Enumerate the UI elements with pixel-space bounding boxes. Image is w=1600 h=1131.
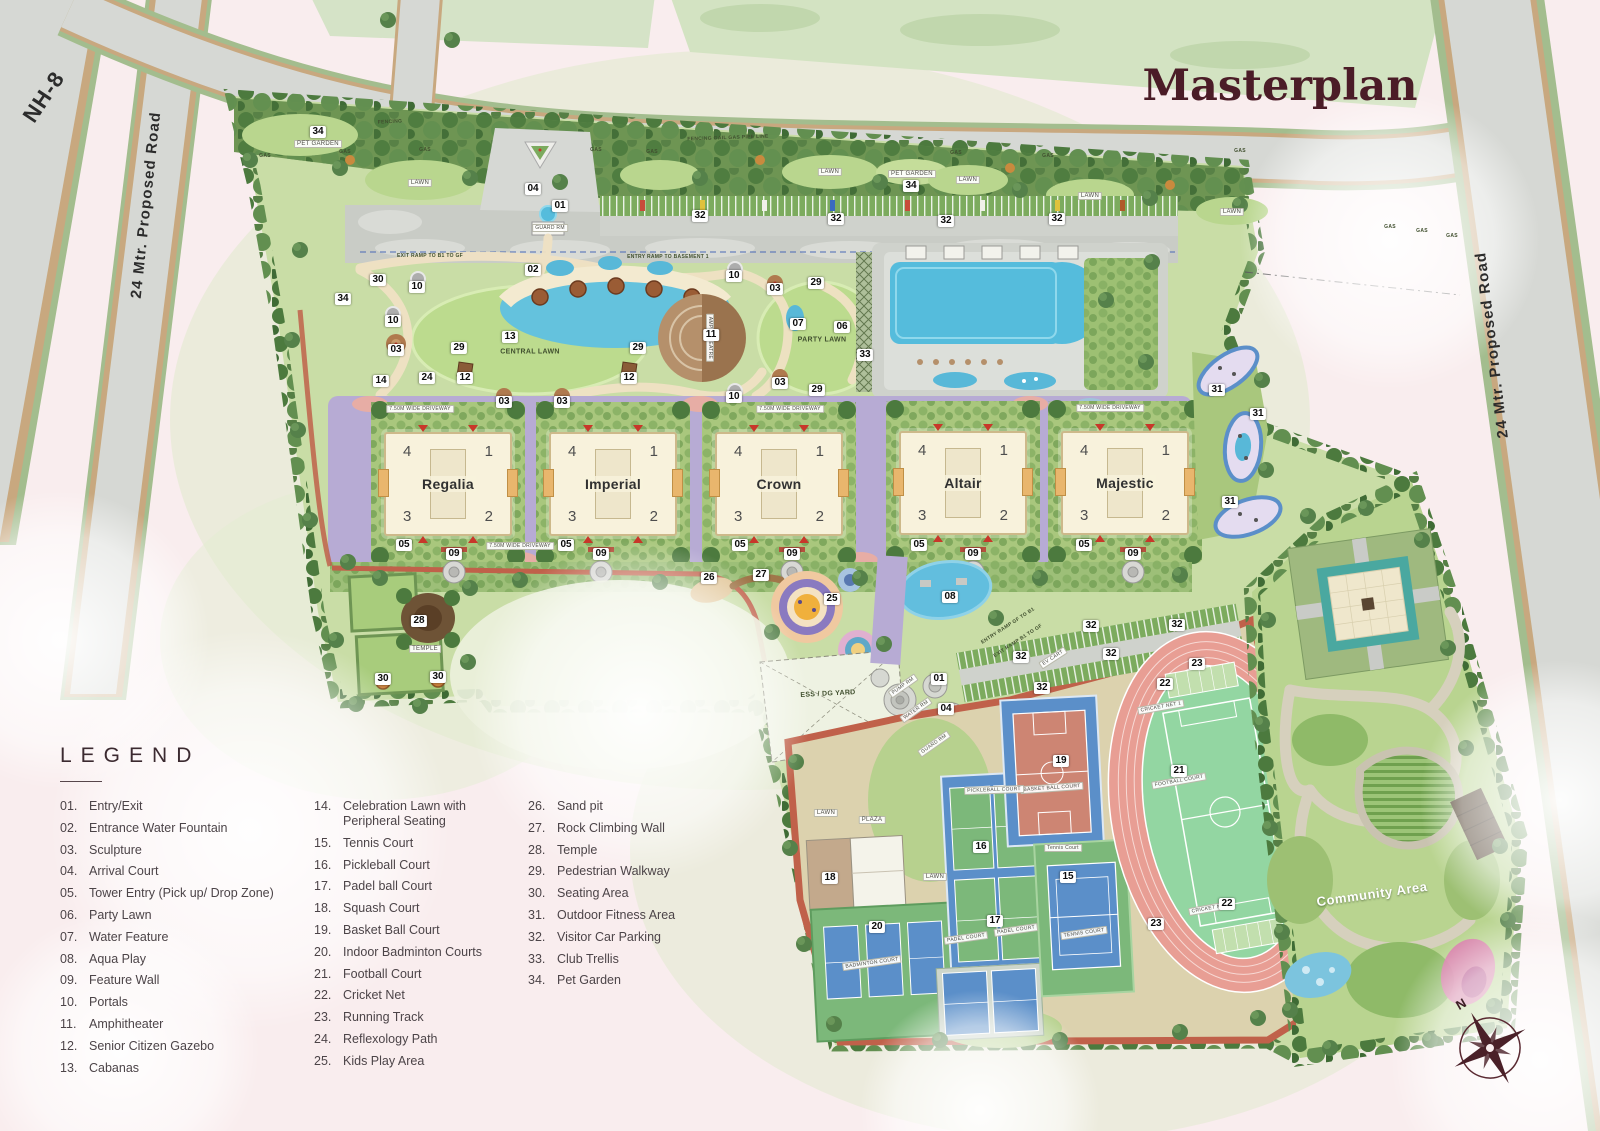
legend-heading: LEGEND bbox=[60, 744, 698, 768]
map-label: LAWN bbox=[408, 179, 432, 187]
tower-entry-tab bbox=[1184, 468, 1195, 496]
legend-column-3: 26.Sand pit27.Rock Climbing Wall28.Templ… bbox=[528, 799, 698, 1082]
map-label: LAWN bbox=[923, 873, 947, 881]
map-marker: 01 bbox=[552, 200, 568, 212]
legend-item: 31.Outdoor Fitness Area bbox=[528, 908, 698, 923]
map-label: LAWN bbox=[956, 176, 980, 184]
map-label: GAS bbox=[259, 153, 271, 159]
map-label: ENTRY RAMP TO BASEMENT 1 bbox=[627, 254, 709, 260]
legend-column-1: 01.Entry/Exit02.Entrance Water Fountain0… bbox=[60, 799, 314, 1082]
entry-arrow-icon bbox=[1095, 424, 1105, 431]
entry-arrow-icon bbox=[799, 425, 809, 432]
tower-unit-number: 4 bbox=[734, 443, 742, 460]
legend-item: 30.Seating Area bbox=[528, 886, 698, 901]
map-label: PET GARDEN bbox=[888, 170, 936, 178]
map-marker: 32 bbox=[1013, 651, 1029, 663]
map-label: GAS bbox=[590, 147, 602, 153]
map-marker: 30 bbox=[370, 274, 386, 286]
tower-name: Altair bbox=[942, 475, 984, 491]
map-marker: 32 bbox=[1049, 213, 1065, 225]
legend-item: 12.Senior Citizen Gazebo bbox=[60, 1039, 314, 1054]
legend-item: 05.Tower Entry (Pick up/ Drop Zone) bbox=[60, 886, 314, 901]
entry-arrow-icon bbox=[583, 425, 593, 432]
map-marker: 32 bbox=[938, 215, 954, 227]
map-label: 7.50M WIDE DRIVEWAY bbox=[486, 542, 554, 550]
entry-arrow-icon bbox=[983, 424, 993, 431]
tower-name: Imperial bbox=[583, 476, 643, 492]
map-label: GAS bbox=[1234, 148, 1246, 154]
legend-item: 13.Cabanas bbox=[60, 1061, 314, 1076]
entry-arrow-icon bbox=[583, 536, 593, 543]
legend-item: 28.Temple bbox=[528, 843, 698, 858]
map-marker: 05 bbox=[911, 539, 927, 551]
map-marker: 12 bbox=[457, 372, 473, 384]
map-marker: 29 bbox=[451, 342, 467, 354]
map-marker: 03 bbox=[388, 344, 404, 356]
map-marker: 31 bbox=[1222, 496, 1238, 508]
map-marker: 23 bbox=[1189, 658, 1205, 670]
map-marker: 05 bbox=[732, 539, 748, 551]
map-marker: 25 bbox=[824, 593, 840, 605]
map-marker: 24 bbox=[419, 372, 435, 384]
legend-item: 10.Portals bbox=[60, 995, 314, 1010]
entry-arrow-icon bbox=[418, 536, 428, 543]
map-marker: 09 bbox=[593, 548, 609, 560]
map-marker: 31 bbox=[1209, 384, 1225, 396]
tower-unit-number: 3 bbox=[734, 508, 742, 525]
tower-unit-number: 4 bbox=[568, 443, 576, 460]
map-marker: 09 bbox=[965, 548, 981, 560]
entry-arrow-icon bbox=[418, 425, 428, 432]
legend-item: 23.Running Track bbox=[314, 1010, 528, 1025]
map-label: LAWN bbox=[1078, 192, 1102, 200]
map-marker: 32 bbox=[692, 210, 708, 222]
tower-unit-number: 4 bbox=[1080, 442, 1088, 459]
tower-entry-tab bbox=[507, 469, 518, 497]
map-label: PLAZA bbox=[859, 816, 886, 824]
legend-column-2: 14.Celebration Lawn with Peripheral Seat… bbox=[314, 799, 528, 1082]
map-marker: 13 bbox=[502, 331, 518, 343]
tower-unit-number: 3 bbox=[918, 507, 926, 524]
map-marker: 22 bbox=[1157, 678, 1173, 690]
tower-unit-number: 1 bbox=[485, 443, 493, 460]
tower-unit-number: 1 bbox=[1162, 442, 1170, 459]
tower-unit-number: 3 bbox=[568, 508, 576, 525]
map-label: LAWN bbox=[814, 809, 838, 817]
map-marker: 18 bbox=[822, 872, 838, 884]
tower-unit-number: 4 bbox=[918, 442, 926, 459]
entry-arrow-icon bbox=[933, 424, 943, 431]
tower-entry-tab bbox=[543, 469, 554, 497]
map-marker: 10 bbox=[726, 391, 742, 403]
tower-unit-number: 4 bbox=[403, 443, 411, 460]
legend-item: 08.Aqua Play bbox=[60, 952, 314, 967]
basketball-court bbox=[1000, 696, 1104, 847]
map-label: GUARD RM bbox=[532, 224, 568, 232]
legend-item: 29.Pedestrian Walkway bbox=[528, 864, 698, 879]
map-marker: 32 bbox=[1103, 648, 1119, 660]
map-marker: 33 bbox=[857, 349, 873, 361]
map-marker: 06 bbox=[834, 321, 850, 333]
map-marker: 05 bbox=[558, 539, 574, 551]
legend-item: 03.Sculpture bbox=[60, 843, 314, 858]
legend-item: 16.Pickleball Court bbox=[314, 858, 528, 873]
tower-block: 4 1 3 2 Imperial bbox=[549, 432, 677, 536]
entry-arrow-icon bbox=[799, 536, 809, 543]
tower-unit-number: 2 bbox=[816, 508, 824, 525]
map-label: PARTY LAWN bbox=[798, 337, 847, 344]
entry-arrow-icon bbox=[1145, 535, 1155, 542]
entry-arrow-icon bbox=[1145, 424, 1155, 431]
legend-item: 20.Indoor Badminton Courts bbox=[314, 945, 528, 960]
legend-item: 15.Tennis Court bbox=[314, 836, 528, 851]
tower-name: Majestic bbox=[1094, 475, 1156, 491]
legend-item: 33.Club Trellis bbox=[528, 952, 698, 967]
map-label: 7.50M WIDE DRIVEWAY bbox=[1076, 404, 1144, 412]
map-label: GAS bbox=[1446, 233, 1458, 239]
tower-unit-number: 2 bbox=[1162, 507, 1170, 524]
tower-entry-tab bbox=[1055, 468, 1066, 496]
map-marker: 23 bbox=[1148, 918, 1164, 930]
map-marker: 05 bbox=[396, 539, 412, 551]
legend-item: 24.Reflexology Path bbox=[314, 1032, 528, 1047]
map-marker: 15 bbox=[1060, 871, 1076, 883]
map-label: LAWN bbox=[818, 168, 842, 176]
swimming-pool-complex bbox=[872, 243, 1168, 398]
entry-arrow-icon bbox=[933, 535, 943, 542]
map-marker: 03 bbox=[772, 377, 788, 389]
legend-item: 11.Amphitheater bbox=[60, 1017, 314, 1032]
tower-block: 4 1 3 2 Altair bbox=[899, 431, 1027, 535]
map-label: GAS bbox=[339, 149, 351, 155]
tower-entry-tab bbox=[1022, 468, 1033, 496]
entry-arrow-icon bbox=[633, 536, 643, 543]
map-marker: 03 bbox=[496, 396, 512, 408]
map-marker: 30 bbox=[430, 671, 446, 683]
map-label: EXIT RAMP TO B1 TO GF bbox=[397, 253, 463, 259]
tower-unit-number: 3 bbox=[1080, 507, 1088, 524]
map-marker: 32 bbox=[1083, 620, 1099, 632]
legend-item: 21.Football Court bbox=[314, 967, 528, 982]
map-marker: 16 bbox=[973, 841, 989, 853]
map-marker: 34 bbox=[335, 293, 351, 305]
tower-unit-number: 2 bbox=[650, 508, 658, 525]
entry-arrow-icon bbox=[749, 425, 759, 432]
legend-item: 17.Padel ball Court bbox=[314, 879, 528, 894]
map-marker: 04 bbox=[525, 183, 541, 195]
legend-underline bbox=[60, 781, 102, 782]
map-label: GAS bbox=[419, 147, 431, 153]
map-marker: 02 bbox=[525, 264, 541, 276]
map-marker: 29 bbox=[808, 277, 824, 289]
map-marker: 05 bbox=[1076, 539, 1092, 551]
tower-entry-tab bbox=[838, 469, 849, 497]
map-marker: 30 bbox=[375, 673, 391, 685]
legend: LEGEND 01.Entry/Exit02.Entrance Water Fo… bbox=[60, 744, 698, 1082]
legend-item: 22.Cricket Net bbox=[314, 988, 528, 1003]
map-marker: 31 bbox=[1250, 408, 1266, 420]
tower-block: 4 1 3 2 Crown bbox=[715, 432, 843, 536]
map-label: TEMPLE bbox=[409, 645, 441, 653]
legend-item: 04.Arrival Court bbox=[60, 864, 314, 879]
map-marker: 32 bbox=[828, 213, 844, 225]
map-marker: 19 bbox=[1053, 755, 1069, 767]
tower-unit-number: 1 bbox=[650, 443, 658, 460]
tower-unit-number: 2 bbox=[485, 508, 493, 525]
entry-arrow-icon bbox=[468, 425, 478, 432]
tower-block: 4 1 3 2 Majestic bbox=[1061, 431, 1189, 535]
legend-item: 07.Water Feature bbox=[60, 930, 314, 945]
legend-item: 09.Feature Wall bbox=[60, 973, 314, 988]
map-marker: 09 bbox=[446, 548, 462, 560]
map-marker: 07 bbox=[790, 318, 806, 330]
map-marker: 17 bbox=[987, 915, 1003, 927]
map-label: GAS bbox=[1384, 224, 1396, 230]
map-marker: 10 bbox=[726, 270, 742, 282]
map-label: GAS bbox=[1416, 228, 1428, 234]
entry-arrow-icon bbox=[749, 536, 759, 543]
legend-item: 02.Entrance Water Fountain bbox=[60, 821, 314, 836]
tower-block: 4 1 3 2 Regalia bbox=[384, 432, 512, 536]
map-marker: 20 bbox=[869, 921, 885, 933]
entry-arrow-icon bbox=[1095, 535, 1105, 542]
entry-arrow-icon bbox=[468, 536, 478, 543]
map-marker: 09 bbox=[1125, 548, 1141, 560]
legend-item: 27.Rock Climbing Wall bbox=[528, 821, 698, 836]
map-label: 7.50M WIDE DRIVEWAY bbox=[386, 405, 454, 413]
page-title: Masterplan bbox=[1142, 61, 1417, 111]
map-marker: 10 bbox=[385, 315, 401, 327]
map-label: GAS bbox=[950, 150, 962, 156]
entry-arrow-icon bbox=[633, 425, 643, 432]
tower-name: Crown bbox=[754, 476, 803, 492]
community-monument bbox=[1288, 529, 1449, 680]
map-label: GAS bbox=[1042, 153, 1054, 159]
map-marker: 29 bbox=[630, 342, 646, 354]
map-marker: 10 bbox=[409, 281, 425, 293]
legend-item: 14.Celebration Lawn with Peripheral Seat… bbox=[314, 799, 528, 829]
legend-item: 19.Basket Ball Court bbox=[314, 923, 528, 938]
legend-item: 32.Visitor Car Parking bbox=[528, 930, 698, 945]
map-marker: 32 bbox=[1169, 619, 1185, 631]
map-marker: 09 bbox=[784, 548, 800, 560]
masterplan-page: Masterplan NH-824 Mtr. Proposed Road24 M… bbox=[0, 0, 1600, 1131]
map-label: PET GARDEN bbox=[294, 140, 342, 148]
tennis-court bbox=[1034, 840, 1134, 997]
tower-name: Regalia bbox=[420, 476, 476, 492]
map-marker: 32 bbox=[1034, 682, 1050, 694]
map-marker: 27 bbox=[753, 569, 769, 581]
tower-entry-tab bbox=[672, 469, 683, 497]
map-label: Tennis Court bbox=[1044, 844, 1082, 852]
map-marker: 29 bbox=[809, 384, 825, 396]
map-label: LAWN bbox=[1220, 208, 1244, 216]
map-marker: 14 bbox=[373, 375, 389, 387]
tower-unit-number: 1 bbox=[1000, 442, 1008, 459]
map-marker: 04 bbox=[938, 703, 954, 715]
entry-arrow-icon bbox=[983, 535, 993, 542]
map-marker: 34 bbox=[903, 180, 919, 192]
legend-item: 26.Sand pit bbox=[528, 799, 698, 814]
map-marker: 21 bbox=[1171, 765, 1187, 777]
tower-unit-number: 3 bbox=[403, 508, 411, 525]
tower-entry-tab bbox=[893, 468, 904, 496]
map-marker: 03 bbox=[554, 396, 570, 408]
map-marker: 03 bbox=[767, 283, 783, 295]
map-marker: 01 bbox=[931, 673, 947, 685]
map-label: CENTRAL LAWN bbox=[500, 349, 559, 356]
map-marker: 28 bbox=[411, 615, 427, 627]
legend-item: 18.Squash Court bbox=[314, 901, 528, 916]
map-label: 7.50M WIDE DRIVEWAY bbox=[756, 405, 824, 413]
map-label: FENCING bbox=[378, 118, 403, 125]
tower-entry-tab bbox=[709, 469, 720, 497]
map-label: GAS bbox=[646, 149, 658, 155]
map-marker: 12 bbox=[621, 372, 637, 384]
map-marker: 08 bbox=[942, 591, 958, 603]
legend-item: 06.Party Lawn bbox=[60, 908, 314, 923]
legend-item: 34.Pet Garden bbox=[528, 973, 698, 988]
legend-item: 25.Kids Play Area bbox=[314, 1054, 528, 1069]
map-marker: 34 bbox=[310, 126, 326, 138]
map-marker: 11 bbox=[703, 329, 719, 341]
tower-unit-number: 1 bbox=[816, 443, 824, 460]
map-marker: 26 bbox=[701, 572, 717, 584]
tower-unit-number: 2 bbox=[1000, 507, 1008, 524]
map-marker: 22 bbox=[1219, 898, 1235, 910]
tower-entry-tab bbox=[378, 469, 389, 497]
legend-item: 01.Entry/Exit bbox=[60, 799, 314, 814]
